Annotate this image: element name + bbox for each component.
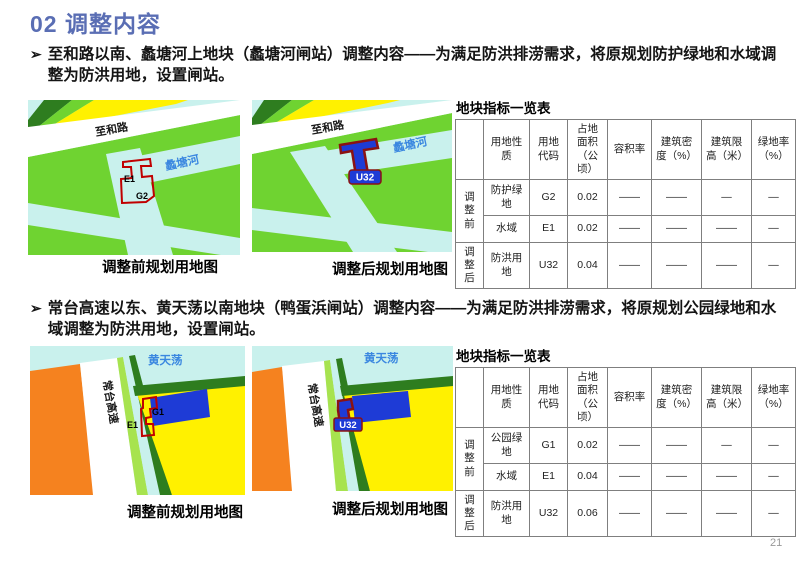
- cell-density: ——: [652, 428, 702, 464]
- cell-area: 0.04: [568, 464, 608, 491]
- group-label-before: 调整前: [456, 180, 484, 243]
- indicator-table-2: 用地性质 用地代码 占地面积（公顷） 容积率 建筑密度（%） 建筑限高（米） 绿…: [455, 367, 796, 537]
- group-label-before: 调整前: [456, 428, 484, 491]
- cell-use: 防护绿地: [484, 180, 530, 216]
- map-caption-before-1: 调整前规划用地图: [70, 256, 250, 277]
- cell-area: 0.04: [568, 243, 608, 289]
- cell-area: 0.06: [568, 491, 608, 537]
- cell-far: ——: [608, 491, 652, 537]
- cell-area: 0.02: [568, 428, 608, 464]
- header-height: 建筑限高（米）: [702, 368, 752, 428]
- cell-use: 水域: [484, 216, 530, 243]
- cell-code: E1: [530, 216, 568, 243]
- bullet-text-2: 常台高速以东、黄天荡以南地块（鸭蛋浜闸站）调整内容——为满足防洪排涝需求，将原规…: [48, 298, 778, 340]
- cell-use: 防洪用地: [484, 243, 530, 289]
- cell-green: —: [752, 180, 796, 216]
- header-code: 用地代码: [530, 368, 568, 428]
- lake-label: 黄天荡: [364, 351, 399, 365]
- header-density: 建筑密度（%）: [652, 368, 702, 428]
- cell-height: ——: [702, 464, 752, 491]
- table-title-1: 地块指标一览表: [456, 97, 551, 117]
- cell-code: G1: [530, 428, 568, 464]
- cell-height: ——: [702, 243, 752, 289]
- bullet-arrow-icon: ➢: [30, 44, 42, 86]
- slide: 02 调整内容 ➢ 至和路以南、蠡塘河上地块（蠡塘河闸站）调整内容——为满足防洪…: [0, 0, 800, 566]
- bullet-arrow-icon: ➢: [30, 298, 42, 340]
- group-label-after: 调整后: [456, 243, 484, 289]
- cell-area: 0.02: [568, 180, 608, 216]
- cell-code: U32: [530, 491, 568, 537]
- map-before-litanghe: E1 G2 至和路 蠡塘河: [28, 100, 240, 255]
- header-far: 容积率: [608, 120, 652, 180]
- cell-green: —: [752, 216, 796, 243]
- header-green: 绿地率（%）: [752, 368, 796, 428]
- cell-use: 水域: [484, 464, 530, 491]
- page-number: 21: [770, 537, 782, 549]
- bullet-text-1: 至和路以南、蠡塘河上地块（蠡塘河闸站）调整内容——为满足防洪排涝需求，将原规划防…: [48, 44, 778, 86]
- header-far: 容积率: [608, 368, 652, 428]
- cell-green: —: [752, 428, 796, 464]
- header-green: 绿地率（%）: [752, 120, 796, 180]
- cell-height: —: [702, 180, 752, 216]
- cell-density: ——: [652, 491, 702, 537]
- map-caption-before-2: 调整前规划用地图: [95, 501, 275, 522]
- cell-far: ——: [608, 216, 652, 243]
- cell-density: ——: [652, 216, 702, 243]
- header-corner: [456, 368, 484, 428]
- cell-height: —: [702, 428, 752, 464]
- lake-label: 黄天荡: [148, 353, 183, 367]
- cell-area: 0.02: [568, 216, 608, 243]
- header-area: 占地面积（公顷）: [568, 368, 608, 428]
- header-area: 占地面积（公顷）: [568, 120, 608, 180]
- map-after-litanghe: U32 至和路 蠡塘河: [252, 100, 452, 252]
- parcel-label-g2: G2: [136, 191, 148, 201]
- map-caption-after-2: 调整后规划用地图: [300, 498, 480, 519]
- table-title-2: 地块指标一览表: [456, 345, 551, 365]
- cell-use: 公园绿地: [484, 428, 530, 464]
- header-density: 建筑密度（%）: [652, 120, 702, 180]
- parcel-label-e1: E1: [124, 174, 135, 184]
- cell-far: ——: [608, 428, 652, 464]
- page-title: 02 调整内容: [30, 5, 161, 39]
- map-caption-after-1: 调整后规划用地图: [300, 258, 480, 279]
- group-label-after: 调整后: [456, 491, 484, 537]
- parcel-label-u32: U32: [356, 173, 375, 184]
- header-use: 用地性质: [484, 368, 530, 428]
- cell-density: ——: [652, 243, 702, 289]
- bullet-item-2: ➢ 常台高速以东、黄天荡以南地块（鸭蛋浜闸站）调整内容——为满足防洪排涝需求，将…: [30, 298, 778, 340]
- cell-density: ——: [652, 464, 702, 491]
- map-after-huangtiandang: U32 常台高速 黄天荡: [252, 346, 453, 491]
- cell-height: ——: [702, 491, 752, 537]
- cell-use: 防洪用地: [484, 491, 530, 537]
- header-use: 用地性质: [484, 120, 530, 180]
- cell-green: —: [752, 491, 796, 537]
- cell-far: ——: [608, 243, 652, 289]
- header-code: 用地代码: [530, 120, 568, 180]
- cell-code: U32: [530, 243, 568, 289]
- parcel-label-g1: G1: [152, 407, 164, 417]
- parcel-label-e1: E1: [127, 420, 138, 430]
- cell-code: E1: [530, 464, 568, 491]
- cell-code: G2: [530, 180, 568, 216]
- bullet-item-1: ➢ 至和路以南、蠡塘河上地块（蠡塘河闸站）调整内容——为满足防洪排涝需求，将原规…: [30, 44, 778, 86]
- header-height: 建筑限高（米）: [702, 120, 752, 180]
- cell-density: ——: [652, 180, 702, 216]
- cell-far: ——: [608, 464, 652, 491]
- indicator-table-1: 用地性质 用地代码 占地面积（公顷） 容积率 建筑密度（%） 建筑限高（米） 绿…: [455, 119, 796, 289]
- cell-green: —: [752, 464, 796, 491]
- cell-far: ——: [608, 180, 652, 216]
- cell-height: ——: [702, 216, 752, 243]
- cell-green: —: [752, 243, 796, 289]
- parcel-label-u32: U32: [339, 420, 356, 431]
- header-corner: [456, 120, 484, 180]
- map-before-huangtiandang: E1 G1 常台高速 黄天荡: [30, 346, 245, 495]
